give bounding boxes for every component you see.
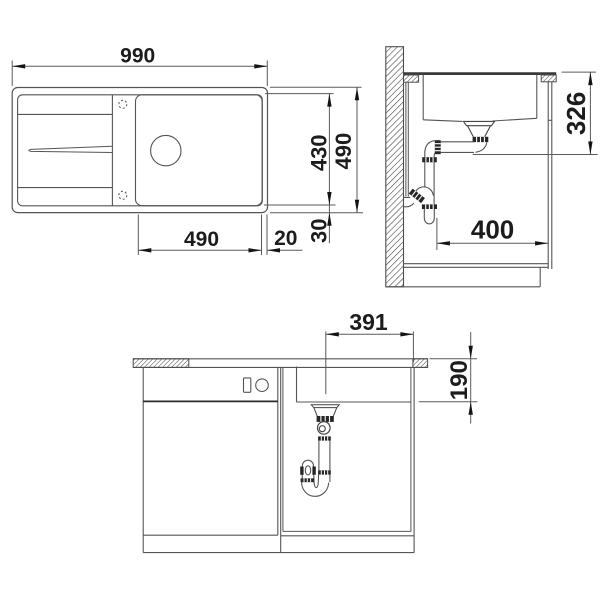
svg-text:326: 326 xyxy=(561,92,591,135)
svg-text:400: 400 xyxy=(471,215,514,245)
svg-text:990: 990 xyxy=(120,44,155,67)
svg-text:30: 30 xyxy=(306,219,331,243)
svg-text:190: 190 xyxy=(446,360,473,400)
svg-text:391: 391 xyxy=(349,309,388,335)
svg-text:20: 20 xyxy=(274,227,297,250)
svg-text:490: 490 xyxy=(184,228,219,251)
svg-text:490: 490 xyxy=(331,133,356,170)
svg-text:430: 430 xyxy=(306,134,331,171)
